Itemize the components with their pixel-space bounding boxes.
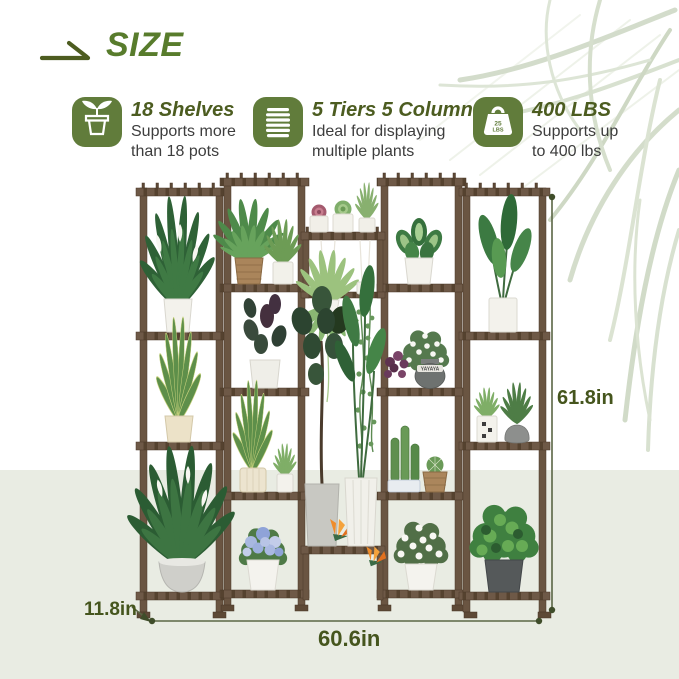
feature-description-line: than 18 pots	[131, 142, 236, 162]
rubber-plant	[241, 294, 289, 388]
feature-description-line: multiple plants	[312, 142, 484, 162]
hydrangea-plant	[239, 527, 287, 590]
weight-icon-value: 25	[494, 121, 502, 128]
white-roses-plant	[394, 522, 449, 590]
feature-description-line: Ideal for displaying	[312, 122, 484, 142]
weight-capacity-icon: 25 LBS	[473, 97, 523, 147]
decorated-pot-sprig	[473, 387, 500, 442]
feature-description-line: to 400 lbs	[532, 142, 618, 162]
depth-dimension-label: 11.8in	[84, 599, 137, 621]
feature-description-line: Supports more	[131, 122, 236, 142]
ficus-plant	[469, 505, 538, 592]
snake-plant-small	[232, 380, 274, 492]
feature-description-line: Supports up	[532, 122, 618, 142]
potted-plant-icon	[72, 97, 122, 147]
feature-title: 18 Shelves	[131, 98, 236, 122]
height-dimension-label: 61.8in	[557, 387, 614, 410]
gray-pot-cactus	[499, 382, 534, 443]
feature-title: 5 Tiers 5 Columns	[312, 98, 484, 122]
feature-title: 400 LBS	[532, 98, 618, 122]
ruler-icon	[38, 38, 94, 64]
cactus-cluster	[388, 426, 420, 492]
feature-weight: 25 LBS 400 LBS Supports up to 400 lbs	[473, 97, 618, 161]
feature-shelves: 18 Shelves Supports more than 18 pots	[72, 97, 236, 161]
width-dimension-label: 60.6in	[318, 626, 380, 652]
small-sprig-pot	[272, 443, 297, 492]
banana-leaf-plant	[474, 193, 536, 332]
succulent-pots-row	[310, 182, 379, 232]
basket-cactus	[423, 457, 447, 493]
weight-icon-unit: LBS	[493, 128, 504, 134]
peace-lily-plant	[138, 195, 218, 332]
tiers-columns-icon	[253, 97, 303, 147]
feature-tiers: 5 Tiers 5 Columns Ideal for displaying m…	[253, 97, 484, 161]
page-title: SIZE	[106, 26, 184, 65]
dieffenbachia-plant	[392, 218, 445, 284]
plant-stand-illustration: YAYAYA	[125, 172, 555, 627]
product-size-infographic: SIZE 18 Shelves Supports more than 18 po…	[0, 0, 679, 679]
patterned-pot-label: YAYAYA	[421, 367, 440, 373]
